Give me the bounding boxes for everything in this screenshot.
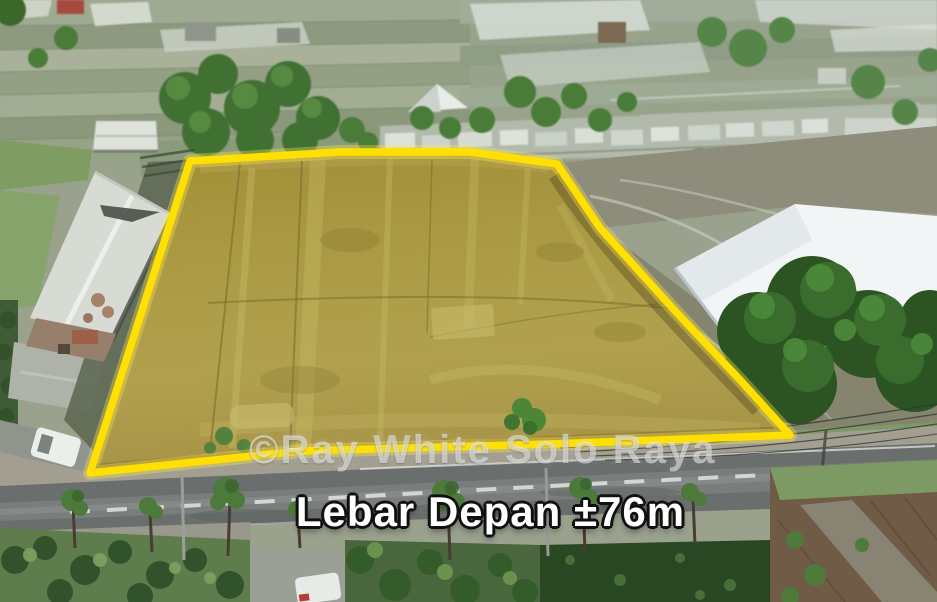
hut	[277, 28, 300, 43]
red-roof-hut	[57, 0, 84, 14]
small-white-house	[93, 121, 158, 151]
caption-front-width: Lebar Depan ±76m	[22, 488, 937, 536]
watermark: ©Ray White Solo Raya	[249, 428, 716, 473]
aerial-photo: ©Ray White Solo Raya Lebar Depan ±76m	[0, 0, 937, 602]
hut	[818, 68, 846, 84]
hut	[185, 23, 216, 41]
hut	[598, 22, 626, 43]
